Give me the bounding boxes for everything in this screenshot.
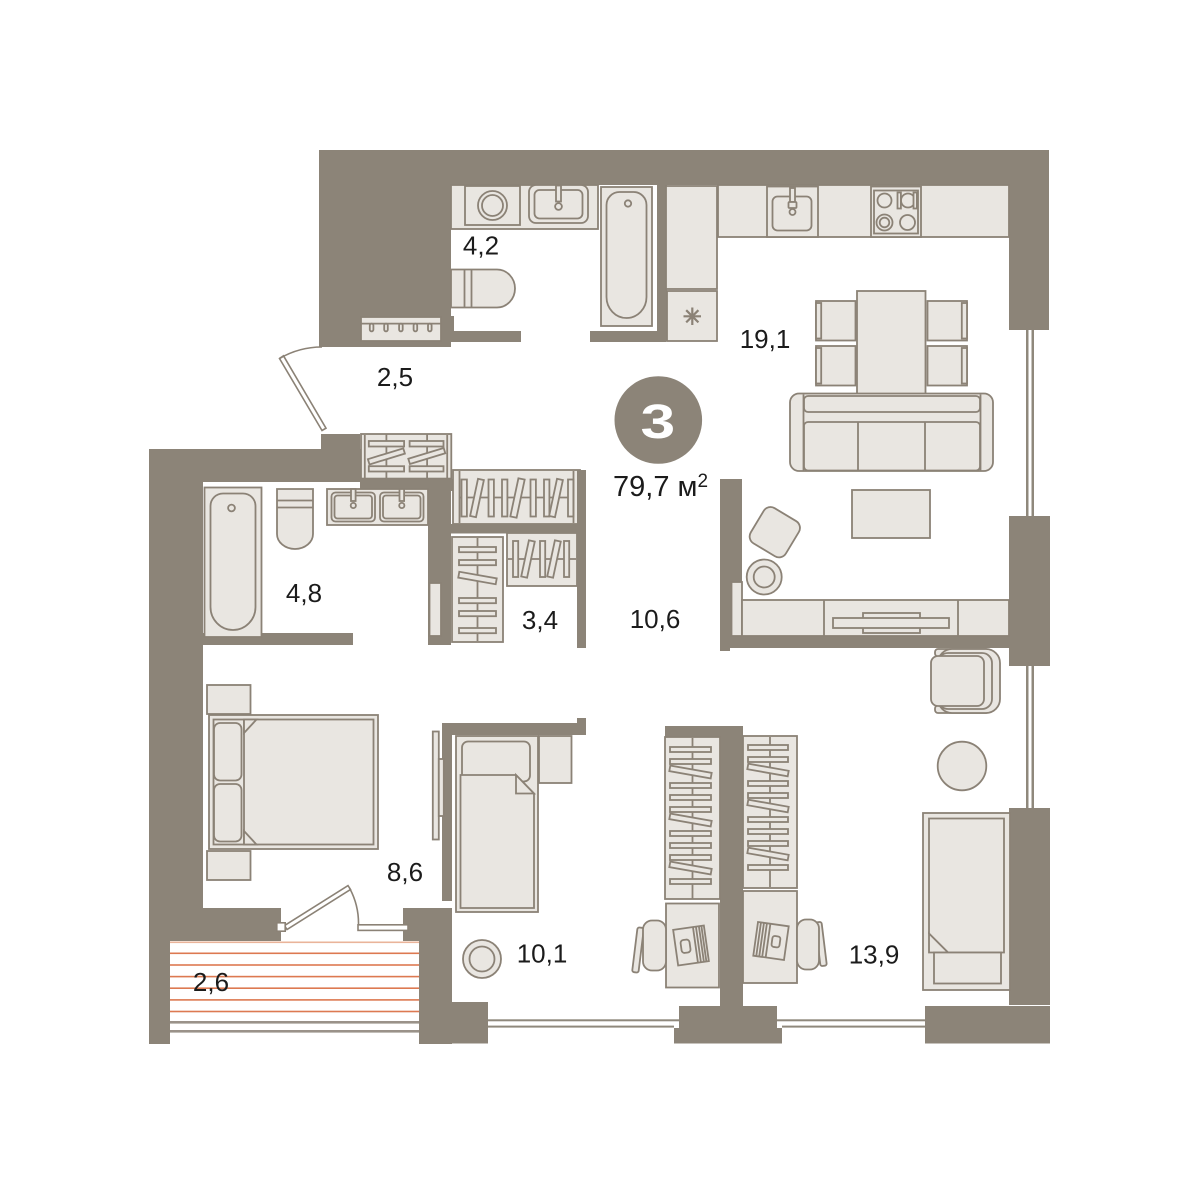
svg-text:4,8: 4,8	[286, 578, 322, 608]
svg-text:8,6: 8,6	[387, 857, 423, 887]
svg-text:3: 3	[640, 395, 675, 448]
svg-text:19,1: 19,1	[740, 324, 791, 354]
svg-text:3,4: 3,4	[522, 605, 558, 635]
svg-text:2,6: 2,6	[193, 967, 229, 997]
svg-text:2,5: 2,5	[377, 362, 413, 392]
svg-text:79,7 м2: 79,7 м2	[613, 471, 708, 503]
svg-text:4,2: 4,2	[463, 231, 499, 261]
svg-text:10,1: 10,1	[517, 939, 568, 969]
svg-text:13,9: 13,9	[849, 940, 900, 970]
svg-text:10,6: 10,6	[630, 604, 681, 634]
